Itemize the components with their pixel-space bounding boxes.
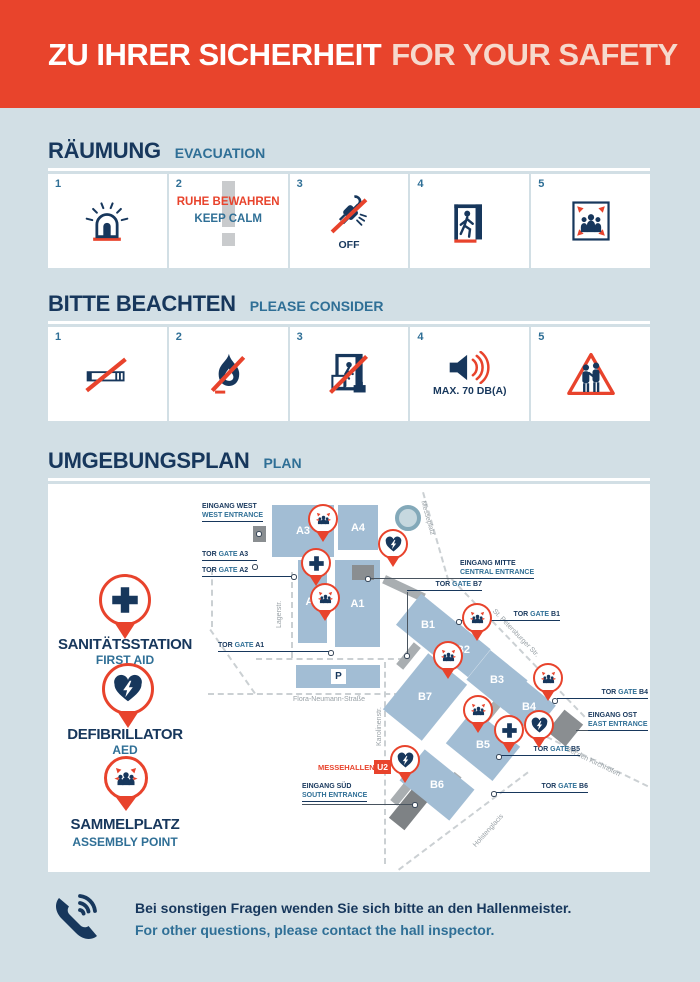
defibrillator-pin	[378, 529, 408, 567]
consider-step-1: 1	[48, 327, 167, 421]
parking-icon: P	[331, 669, 346, 684]
step-number: 3	[297, 178, 303, 190]
footer-line-en: For other questions, please contact the …	[135, 922, 494, 938]
defibrillator-pin	[524, 710, 554, 748]
step-number: 1	[55, 331, 61, 343]
label-line	[302, 804, 414, 805]
label-line	[370, 578, 460, 579]
map-dot	[291, 574, 297, 580]
legend-assembly-de: SAMMELPLATZ	[48, 816, 210, 833]
step-number: 5	[538, 178, 544, 190]
hall-a4: A4	[338, 505, 378, 550]
street-label: Flora-Neumann-Straße	[293, 696, 365, 703]
assembly-point-pin	[308, 504, 338, 542]
street-label: Lagerstr.	[276, 601, 283, 628]
step-number: 4	[417, 178, 423, 190]
consider-title: BITTE BEACHTENPLEASE CONSIDER	[48, 291, 650, 317]
legend-defibrillator-en: AED	[48, 743, 210, 757]
gate-b4-label: TOR GATE B4	[557, 689, 648, 699]
u2-line-badge: U2	[374, 760, 391, 774]
map-dot	[328, 650, 334, 656]
south-entrance-label: EINGANG SÜDSOUTH ENTRANCE	[302, 783, 367, 802]
keep-calm-de: RUHE BEWAHREN	[169, 196, 288, 208]
page-title: ZU IHRER SICHERHEITFOR YOUR SAFETY	[0, 0, 700, 72]
subway-station-label: MESSEHALLEN	[318, 763, 370, 772]
no-smoking-icon	[81, 350, 133, 398]
title-english: FOR YOUR SAFETY	[391, 37, 677, 72]
assembly-point-icon	[565, 197, 617, 245]
evacuation-step-2: 2 RUHE BEWAHREN KEEP CALM	[169, 174, 288, 268]
exclamation-dot	[222, 233, 235, 246]
legend-assembly-pin	[104, 756, 148, 811]
evacuation-step-1: 1	[48, 174, 167, 268]
evacuation-title-de: RÄUMUNG	[48, 138, 161, 163]
consider-step-2: 2	[169, 327, 288, 421]
section-consider: BITTE BEACHTENPLEASE CONSIDER 1 2	[48, 291, 650, 421]
legend-first-aid-pin	[99, 574, 151, 639]
pickpocket-warning-icon	[565, 350, 617, 398]
street-label: Karolinenstr.	[376, 707, 383, 746]
evacuation-step-4: 4	[410, 174, 529, 268]
plan-title: UMGEBUNGSPLANPLAN	[48, 448, 650, 474]
assembly-point-pin	[310, 583, 340, 621]
consider-step-4: 4 MAX. 70 DB(A)	[410, 327, 529, 421]
map-dot	[412, 802, 418, 808]
gate-b7-label: TOR GATE B7	[407, 581, 482, 591]
assembly-point-pin	[462, 603, 492, 641]
label-line	[407, 592, 408, 654]
step-number: 4	[417, 331, 423, 343]
max-volume-label: MAX. 70 DB(A)	[433, 385, 507, 397]
map-dot	[256, 531, 262, 537]
section-evacuation: RÄUMUNGEVACUATION 1 2 RUHE BEWAHREN KEEP…	[48, 138, 650, 268]
title-german: ZU IHRER SICHERHEIT	[48, 37, 381, 72]
map-dot	[552, 698, 558, 704]
map-dot	[491, 791, 497, 797]
consider-steps: 1 2 3	[48, 327, 650, 421]
road	[209, 629, 255, 694]
plan-title-en: PLAN	[263, 455, 301, 471]
evacuation-step-5: 5	[531, 174, 650, 268]
step-number: 2	[176, 331, 182, 343]
divider	[48, 321, 650, 324]
map-dot	[496, 754, 502, 760]
emergency-exit-icon	[444, 197, 496, 245]
legend-defibrillator-pin	[102, 663, 154, 728]
step-number: 1	[55, 178, 61, 190]
section-plan: UMGEBUNGSPLANPLAN Lagerstr. Messeplatz S…	[48, 448, 650, 872]
step-number: 2	[176, 178, 182, 190]
phone-icon	[50, 888, 106, 946]
road	[211, 569, 213, 627]
central-entrance-label: EINGANG MITTECENTRAL ENTRANCE	[460, 560, 534, 579]
site-map: Lagerstr. Messeplatz St. Petersburger St…	[48, 484, 650, 872]
assembly-point-pin	[533, 663, 563, 701]
consider-step-5: 5	[531, 327, 650, 421]
west-entrance-label: EINGANG WESTWEST ENTRANCE	[202, 503, 263, 522]
max-volume-icon	[441, 351, 499, 384]
road	[208, 693, 400, 695]
first-aid-pin	[494, 715, 524, 753]
legend-assembly-en: ASSEMBLY POINT	[48, 835, 210, 849]
gate-a3-label: TOR GATE A3	[202, 551, 257, 561]
map-dot	[404, 653, 410, 659]
street-label: Messeplatz	[419, 500, 435, 536]
gate-a2-label: TOR GATE A2	[202, 567, 294, 577]
assembly-point-pin	[463, 695, 493, 733]
first-aid-pin	[301, 548, 331, 586]
alarm-icon	[81, 197, 133, 245]
label-line	[576, 730, 588, 731]
street-label: Holstenglacis	[472, 813, 505, 849]
safety-poster: ZU IHRER SICHERHEITFOR YOUR SAFETY RÄUMU…	[0, 0, 700, 982]
evacuation-title: RÄUMUNGEVACUATION	[48, 138, 650, 164]
divider	[48, 478, 650, 481]
step-number: 5	[538, 331, 544, 343]
gate-b6-label: TOR GATE B6	[496, 783, 588, 793]
defibrillator-pin	[390, 745, 420, 783]
gate-a1-label: TOR GATE A1	[218, 642, 330, 652]
consider-step-3: 3	[290, 327, 409, 421]
off-label: OFF	[338, 239, 359, 251]
consider-title-de: BITTE BEACHTEN	[48, 291, 236, 316]
roundabout	[395, 505, 421, 531]
map-dot	[456, 619, 462, 625]
legend-defibrillator-de: DEFIBRILLATOR	[48, 726, 210, 743]
footer-line-de: Bei sonstigen Fragen wenden Sie sich bit…	[135, 900, 571, 916]
power-off-icon	[324, 192, 374, 238]
header-banner: ZU IHRER SICHERHEITFOR YOUR SAFETY	[0, 0, 700, 108]
evacuation-title-en: EVACUATION	[175, 145, 265, 161]
map-dot	[252, 564, 258, 570]
keep-calm-en: KEEP CALM	[169, 213, 288, 225]
evacuation-step-3: 3 OFF	[290, 174, 409, 268]
no-blocking-exits-icon	[323, 350, 375, 398]
evacuation-steps: 1 2 RUHE BEWAHREN KEEP CALM 3	[48, 174, 650, 268]
plan-title-de: UMGEBUNGSPLAN	[48, 448, 249, 473]
east-entrance-label: EINGANG OSTEAST ENTRANCE	[588, 712, 648, 731]
no-open-fire-icon	[202, 350, 254, 398]
map-dot	[365, 576, 371, 582]
consider-title-en: PLEASE CONSIDER	[250, 298, 384, 314]
road	[256, 658, 404, 660]
assembly-point-pin	[433, 641, 463, 679]
divider	[48, 168, 650, 171]
step-number: 3	[297, 331, 303, 343]
